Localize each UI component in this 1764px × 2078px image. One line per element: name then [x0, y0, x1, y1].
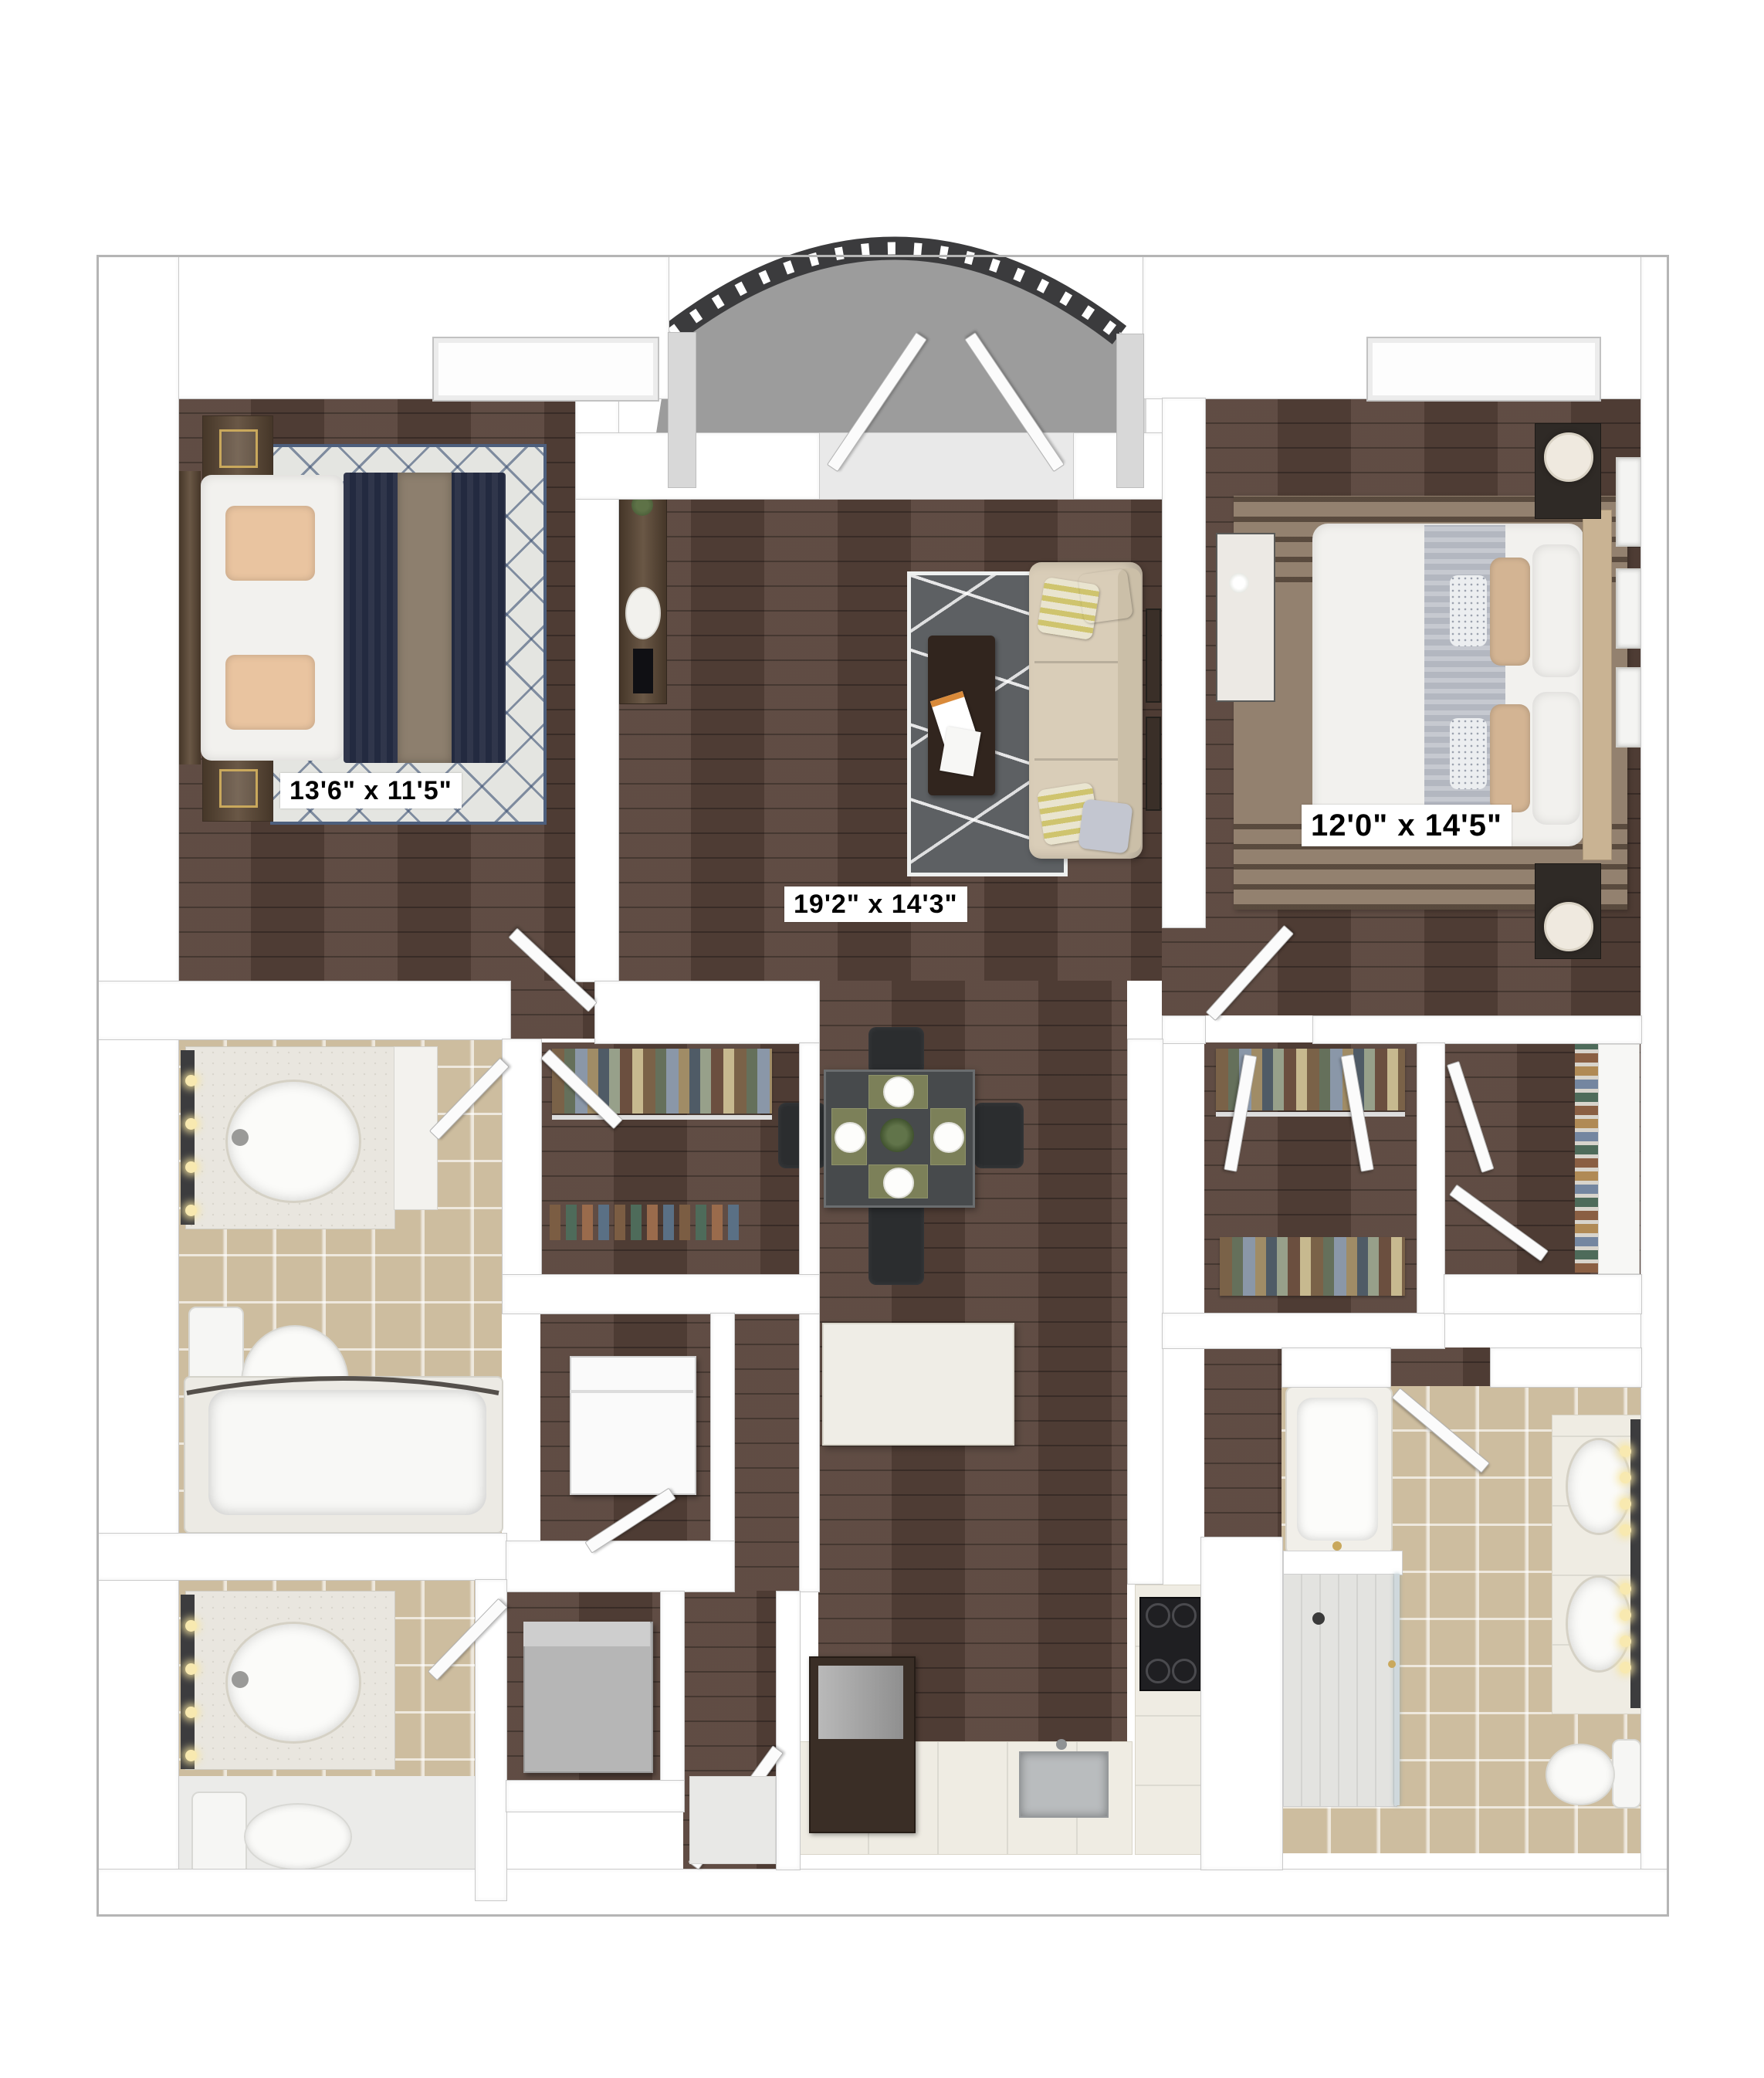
wall: [710, 1313, 735, 1546]
burner: [1172, 1603, 1197, 1628]
vanity-light: [1620, 1636, 1631, 1647]
wall: [799, 1305, 820, 1592]
wall: [1417, 1042, 1445, 1349]
bedroom-2-wall-frame: [1616, 457, 1642, 547]
vanity-light: [185, 1707, 197, 1718]
dining-chair: [868, 1027, 924, 1075]
kitchen-sink: [1019, 1751, 1109, 1818]
vanity-light: [1620, 1524, 1631, 1536]
bedroom-2-dimensions-label: 12'0" x 14'5": [1302, 805, 1512, 846]
hallway-floor: [733, 1313, 799, 1591]
burner: [1146, 1603, 1170, 1628]
wall: [506, 1780, 685, 1812]
sofa-pillow-damask: [1078, 568, 1133, 624]
vanity-light: [185, 1075, 197, 1086]
wall: [96, 1533, 507, 1581]
bedroom-2-pillow-tan: [1490, 558, 1530, 666]
bedroom-2-pillow-tan: [1490, 704, 1530, 812]
dining-chair: [974, 1103, 1024, 1168]
vanity-light: [185, 1118, 197, 1130]
master-door-floor: [1390, 1347, 1490, 1386]
laundry-appliance-lid: [570, 1390, 693, 1393]
bedroom-2-lamp: [1544, 432, 1593, 482]
shower-handle: [1388, 1660, 1396, 1668]
tv-console-tv: [633, 649, 653, 693]
wall: [660, 1591, 685, 1809]
kitchen-faucet: [1056, 1739, 1067, 1750]
wall: [1490, 1347, 1642, 1388]
sofa-seat-line: [1034, 758, 1118, 761]
vanity-light: [1620, 1583, 1631, 1595]
vanity-light: [185, 1663, 197, 1675]
bedroom-1-bed-runner: [398, 473, 452, 763]
wall-picture: [1146, 717, 1161, 811]
bedroom-1-headboard: [179, 471, 201, 764]
dresser-decor: [1229, 573, 1249, 593]
wall: [502, 1274, 820, 1314]
wall: [96, 981, 511, 1040]
wall: [1200, 1537, 1283, 1870]
closet-1-shoes: [550, 1205, 743, 1240]
dining-chair: [868, 1198, 924, 1285]
plate: [883, 1076, 914, 1107]
bedroom-2-wall-frame: [1616, 667, 1642, 747]
bedroom-2-pillow-accent: [1450, 575, 1487, 646]
utility-appliance-top: [523, 1622, 650, 1646]
closet-b-cabinet: [1598, 1044, 1640, 1274]
bedroom-2-pillow-white: [1532, 544, 1580, 677]
bedroom-1-lamp: [219, 429, 258, 468]
vanity-light: [1620, 1498, 1631, 1510]
shower-glass: [1394, 1574, 1400, 1805]
corridor-floor: [1204, 1347, 1282, 1537]
wall: [1444, 1274, 1642, 1314]
vanity-light: [185, 1161, 197, 1173]
bathroom-2-faucet: [232, 1671, 249, 1688]
master-toilet-tank: [1612, 1739, 1641, 1809]
wall: [1162, 398, 1206, 928]
wall: [1312, 1015, 1642, 1044]
vanity-light: [1620, 1662, 1631, 1673]
plate: [883, 1168, 914, 1198]
bedroom-2-headboard: [1583, 510, 1612, 860]
shower-drain: [1312, 1612, 1325, 1625]
bedroom-2-pillow-accent: [1450, 718, 1487, 789]
bedroom-1-lamp: [219, 769, 258, 808]
closet-b-shoe-shelf: [1575, 1044, 1598, 1273]
burner: [1172, 1659, 1197, 1683]
sofa-seat-line: [1034, 661, 1118, 663]
closet-a-clothes-bottom: [1220, 1237, 1405, 1296]
wall: [506, 1541, 735, 1592]
wall: [502, 1039, 542, 1307]
bedroom-1-pillow: [225, 506, 315, 581]
wall: [1640, 255, 1669, 1917]
sideboard-dish: [625, 587, 661, 639]
bathroom-2-toilet-tank: [191, 1792, 247, 1876]
closet-1-clothes: [552, 1049, 772, 1114]
wall: [1282, 1347, 1391, 1388]
wall: [776, 1591, 801, 1870]
vanity-light: [1620, 1472, 1631, 1483]
centerpiece-plant: [880, 1118, 914, 1152]
bedroom-2-dresser: [1216, 533, 1275, 702]
vanity-light: [185, 1205, 197, 1216]
plate: [835, 1122, 865, 1153]
bedroom-2-pillow-white: [1532, 692, 1580, 825]
master-tub-faucet: [1332, 1541, 1342, 1551]
bathroom-2-toilet-bowl: [244, 1803, 352, 1870]
shower-rod: [184, 1359, 502, 1413]
bedroom-2-lamp: [1544, 902, 1593, 951]
sofa-pillow-damask: [1078, 798, 1133, 853]
bedroom-2-wall-frame: [1616, 568, 1642, 649]
refrigerator-doors: [818, 1666, 903, 1739]
vanity-light: [185, 1620, 197, 1632]
wall: [1162, 1015, 1206, 1044]
vanity-light: [185, 1750, 197, 1761]
wall: [96, 1869, 1669, 1917]
wall: [1127, 1039, 1163, 1585]
kitchen-island: [822, 1323, 1014, 1446]
bathroom-1-faucet: [232, 1129, 249, 1146]
shower-half-wall: [1283, 1551, 1403, 1575]
master-toilet-bowl: [1546, 1744, 1615, 1805]
vanity-light: [1620, 1609, 1631, 1621]
wall: [575, 432, 820, 500]
balcony-side-wall: [1116, 334, 1144, 488]
master-tub-basin: [1297, 1398, 1378, 1541]
bedroom-1-window: [432, 337, 659, 402]
wall: [1162, 1313, 1445, 1349]
master-mirror: [1630, 1419, 1641, 1708]
entry-mat: [689, 1776, 776, 1864]
wall: [96, 255, 179, 1917]
burner: [1146, 1659, 1170, 1683]
balcony-side-wall: [668, 332, 696, 488]
bedroom-2-hall-floor: [1162, 927, 1204, 1015]
floor-plan: 13'6" x 11'5" 19'2" x 14'3" 12'0" x 14'5…: [0, 0, 1764, 2078]
wall: [799, 1042, 820, 1307]
bedroom-1-pillow: [225, 655, 315, 730]
bedroom-2-window: [1366, 337, 1601, 402]
laundry-appliance: [570, 1356, 696, 1495]
wall: [594, 981, 820, 1044]
wall-picture: [1146, 608, 1161, 703]
plate: [933, 1122, 964, 1153]
vanity-light: [1620, 1446, 1631, 1457]
bedroom-1-dimensions-label: 13'6" x 11'5": [280, 773, 462, 808]
closet-1-rod: [552, 1115, 772, 1120]
walk-in-shower: [1283, 1574, 1397, 1807]
living-room-dimensions-label: 19'2" x 14'3": [784, 886, 967, 922]
